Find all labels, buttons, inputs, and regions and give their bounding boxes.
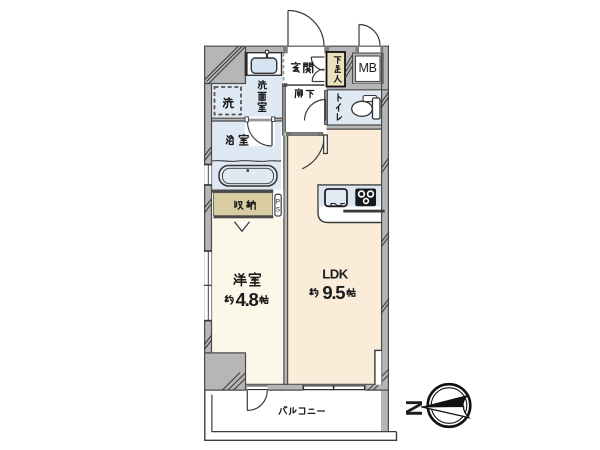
- svg-text:9.5: 9.5: [322, 282, 345, 303]
- svg-text:LDK: LDK: [322, 266, 349, 281]
- svg-text:MB: MB: [359, 61, 377, 75]
- svg-text:4.8: 4.8: [236, 289, 259, 310]
- svg-text:P: P: [276, 199, 280, 206]
- svg-text:S: S: [276, 207, 281, 214]
- svg-text:N: N: [401, 400, 427, 417]
